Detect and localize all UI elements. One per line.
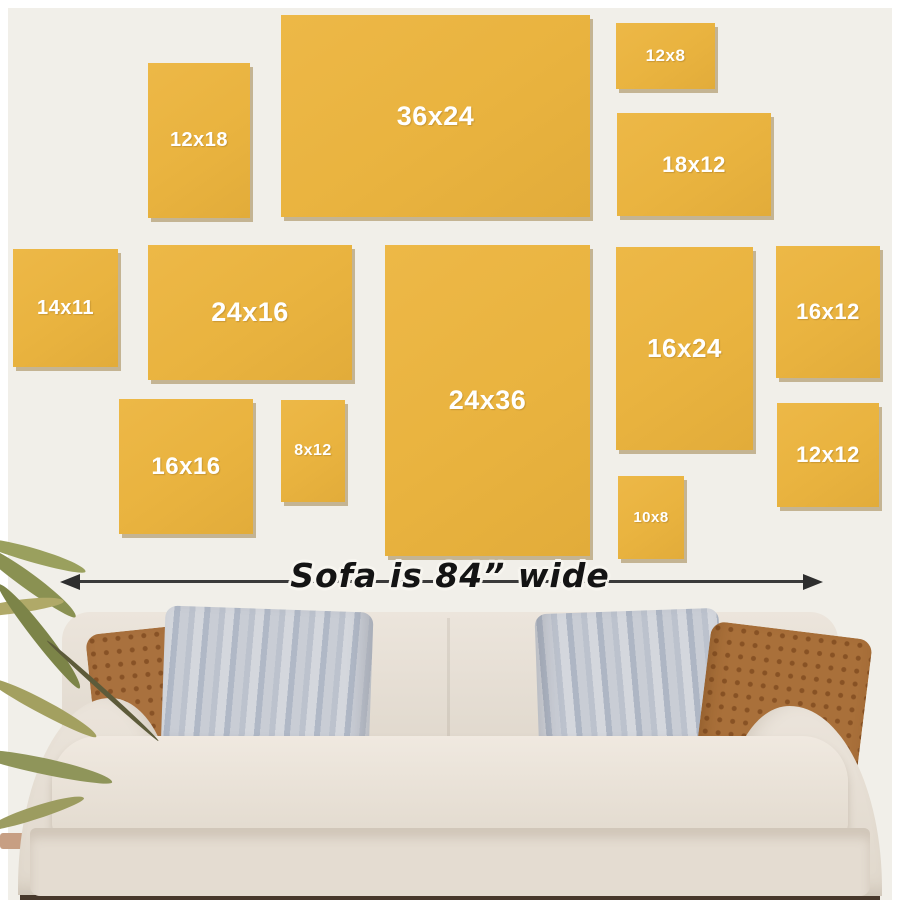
frame-16x24: 16x24 <box>616 247 753 450</box>
frame-8x12: 8x12 <box>281 400 345 502</box>
frame-10x8: 10x8 <box>618 476 684 559</box>
frame-12x18: 12x18 <box>148 63 250 218</box>
frame-24x36: 24x36 <box>385 245 590 556</box>
arrow-left-icon <box>60 574 80 590</box>
frame-16x12: 16x12 <box>776 246 880 378</box>
frame-size-label: 8x12 <box>294 442 332 460</box>
frame-size-label: 24x16 <box>211 297 289 328</box>
frame-size-label: 24x36 <box>449 385 527 416</box>
frame-size-label: 16x24 <box>647 333 722 364</box>
sofa-width-label: Sofa is 84” wide <box>250 556 650 595</box>
frame-12x8: 12x8 <box>616 23 715 89</box>
frame-12x12: 12x12 <box>777 403 879 507</box>
frame-16x16: 16x16 <box>119 399 253 534</box>
frame-size-label: 12x8 <box>646 46 686 66</box>
frame-size-label: 12x18 <box>170 129 228 152</box>
arrow-right-icon <box>803 574 823 590</box>
frame-size-label: 18x12 <box>662 152 726 178</box>
frame-18x12: 18x12 <box>617 113 771 216</box>
frame-size-label: 16x16 <box>151 453 220 481</box>
frame-size-label: 10x8 <box>633 509 668 526</box>
frame-size-label: 16x12 <box>796 299 860 325</box>
frame-size-label: 36x24 <box>397 101 475 132</box>
frame-24x16: 24x16 <box>148 245 352 380</box>
frame-size-label: 12x12 <box>796 442 860 468</box>
sofa-base <box>30 828 870 896</box>
wall-art-size-guide: 12x1836x2412x818x1214x1124x1624x3616x241… <box>0 0 900 900</box>
frame-36x24: 36x24 <box>281 15 590 217</box>
frame-14x11: 14x11 <box>13 249 118 367</box>
frame-size-label: 14x11 <box>37 297 94 320</box>
